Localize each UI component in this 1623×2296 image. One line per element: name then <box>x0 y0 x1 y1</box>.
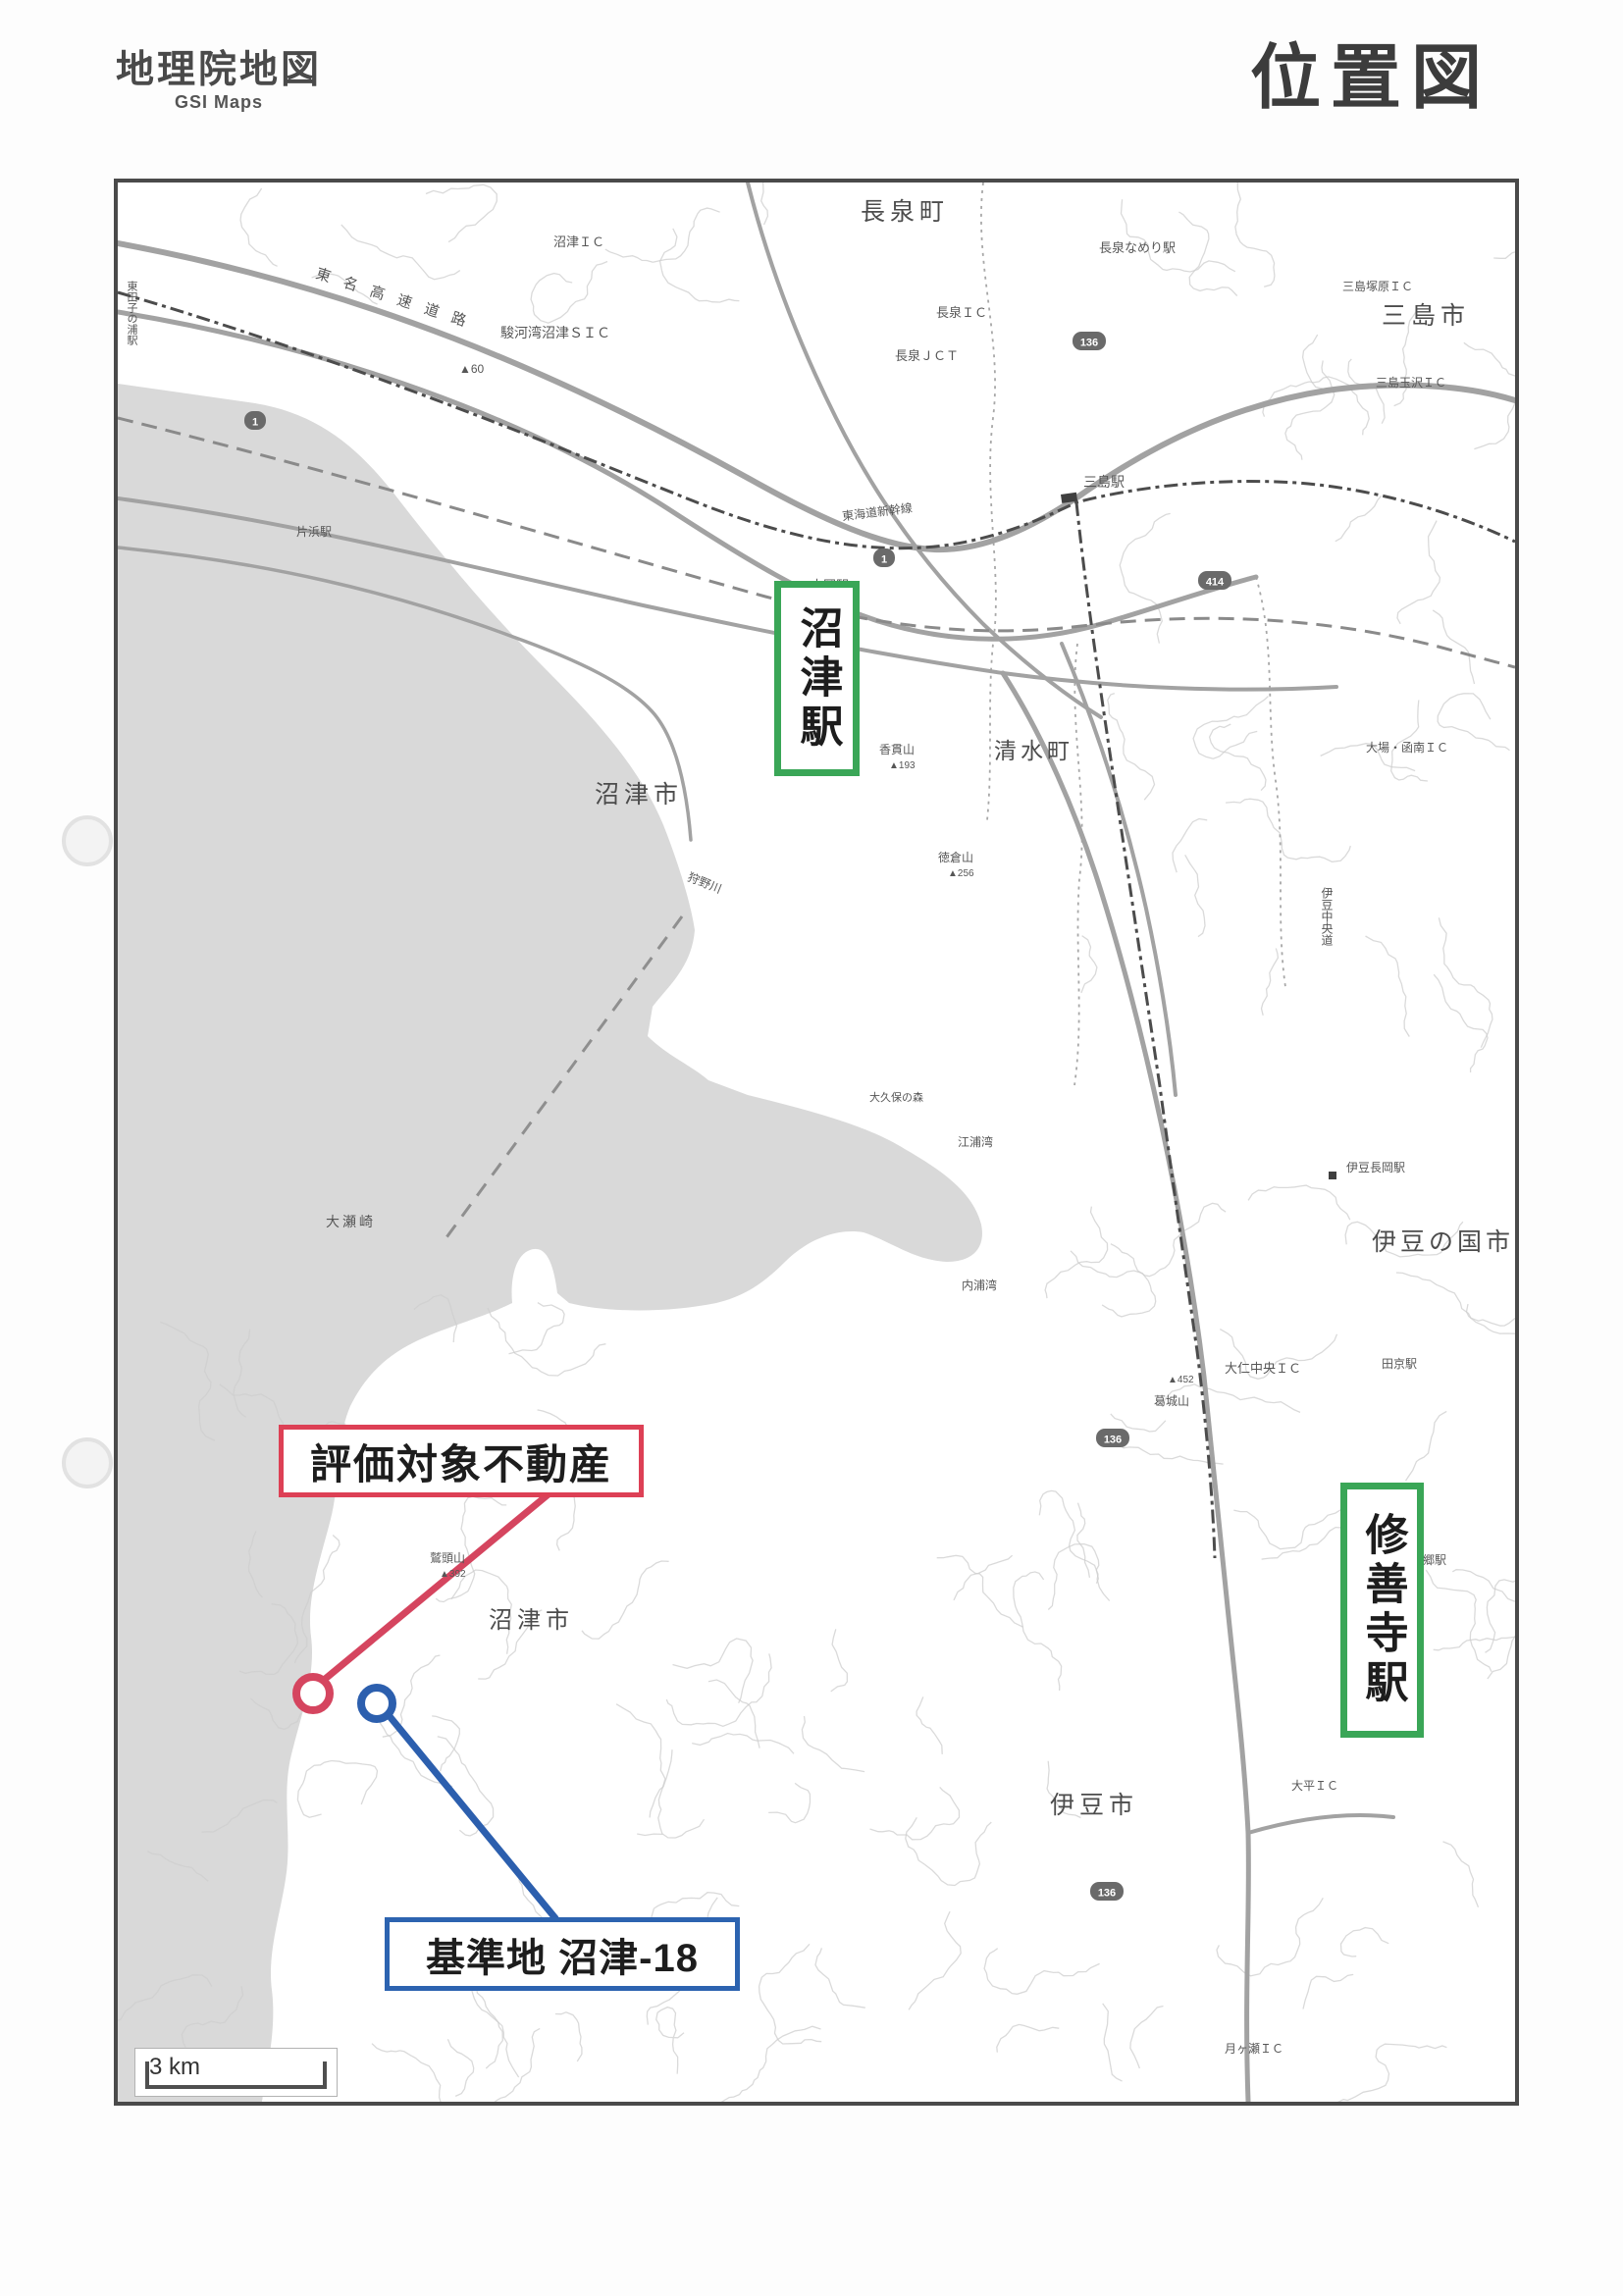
svg-text:136: 136 <box>1098 1888 1116 1900</box>
scanned-document-page: 地理院地図 GSI Maps 位置図 11136414136136 沼津駅 修善… <box>0 0 1623 2296</box>
route-shield: 1 <box>244 411 266 430</box>
map-label: 伊豆中央道 <box>1321 887 1333 946</box>
map-label: ▲256 <box>948 869 974 879</box>
gsi-logo-subtitle: GSI Maps <box>116 92 322 113</box>
map-label: 長泉ＪＣＴ <box>895 349 959 362</box>
map-label: 沼津市 <box>489 1609 574 1633</box>
route-shield: 136 <box>1096 1429 1129 1447</box>
map-label: 駿河湾沼津ＳＩＣ <box>500 326 610 339</box>
map-label: 長泉ＩＣ <box>936 306 987 319</box>
map-label: 内浦湾 <box>962 1279 997 1291</box>
subject-property-marker <box>296 1677 330 1710</box>
map-label: 清水町 <box>994 740 1073 762</box>
map-label: 大久保の森 <box>869 1093 923 1104</box>
map-label: 鷲頭山 <box>430 1552 465 1564</box>
svg-text:136: 136 <box>1104 1435 1122 1446</box>
numazu-station-annotation: 沼津駅 <box>774 581 860 776</box>
route-shield: 136 <box>1073 332 1106 350</box>
map-label: 伊豆の国市 <box>1372 1230 1514 1255</box>
svg-text:1: 1 <box>881 554 887 566</box>
map-label: 沼津ＩＣ <box>553 235 604 248</box>
map-label: 三島市 <box>1382 304 1470 329</box>
map-label: 江浦湾 <box>958 1136 993 1148</box>
map-canvas: 11136414136136 <box>118 183 1515 2102</box>
map-label: 葛城山 <box>1154 1395 1189 1407</box>
map-label: 大仁中央ＩＣ <box>1225 1362 1301 1375</box>
gsi-logo-title: 地理院地図 <box>116 51 322 89</box>
map-label: 長泉なめり駅 <box>1099 241 1176 254</box>
map-label: 長泉町 <box>861 200 949 225</box>
map-label: 徳倉山 <box>938 852 973 863</box>
location-map: 11136414136136 沼津駅 修善寺駅 評価対象不動産 基準地 沼津-1… <box>114 179 1519 2106</box>
map-label: ▲60 <box>459 363 484 375</box>
route-shield: 1 <box>873 548 895 567</box>
map-label: 東田子の浦駅 <box>126 281 136 345</box>
route-shield: 136 <box>1090 1882 1124 1901</box>
svg-text:136: 136 <box>1080 338 1098 349</box>
map-label: 三島駅 <box>1083 475 1125 489</box>
map-label: ▲452 <box>1168 1376 1194 1385</box>
shuzenji-station-label: 修善寺駅 <box>1351 1512 1414 1708</box>
svg-text:414: 414 <box>1206 577 1225 589</box>
route-shield: 414 <box>1198 571 1231 590</box>
shuzenji-station-annotation: 修善寺駅 <box>1340 1483 1424 1738</box>
map-label: 沼津市 <box>595 783 683 808</box>
reference-site-marker <box>361 1688 393 1719</box>
map-label: 片浜駅 <box>296 526 332 538</box>
map-label: 三島塚原ＩＣ <box>1342 281 1413 292</box>
gsi-maps-logo: 地理院地図 GSI Maps <box>116 51 322 113</box>
map-label: 田京駅 <box>1382 1358 1417 1370</box>
hole-punch-bottom <box>62 1437 113 1488</box>
map-label: 大平ＩＣ <box>1291 1780 1338 1792</box>
svg-text:1: 1 <box>252 417 258 429</box>
map-label: ▲392 <box>440 1570 466 1580</box>
scale-bar: 3 km <box>134 2048 338 2097</box>
map-label: 月ヶ瀬ＩＣ <box>1225 2043 1283 2055</box>
hole-punch-top <box>62 815 113 866</box>
map-label: 大瀬崎 <box>326 1215 376 1228</box>
reference-site-label: 基準地 沼津-18 <box>426 1926 699 1983</box>
map-label: 大場・函南ＩＣ <box>1366 742 1448 754</box>
scale-bar-bracket <box>145 2061 327 2089</box>
reference-site-annotation: 基準地 沼津-18 <box>385 1917 740 1991</box>
map-label: 伊豆長岡駅 <box>1346 1162 1405 1174</box>
map-label: 伊豆市 <box>1050 1794 1138 1818</box>
page-title: 位置図 <box>1250 43 1492 114</box>
subject-property-annotation: 評価対象不動産 <box>279 1425 644 1497</box>
numazu-station-label: 沼津駅 <box>786 605 849 753</box>
map-label: ▲193 <box>889 761 916 771</box>
subject-property-label: 評価対象不動産 <box>310 1432 612 1491</box>
map-label: 三島玉沢ＩＣ <box>1376 377 1446 389</box>
map-label: 香貫山 <box>879 744 915 756</box>
